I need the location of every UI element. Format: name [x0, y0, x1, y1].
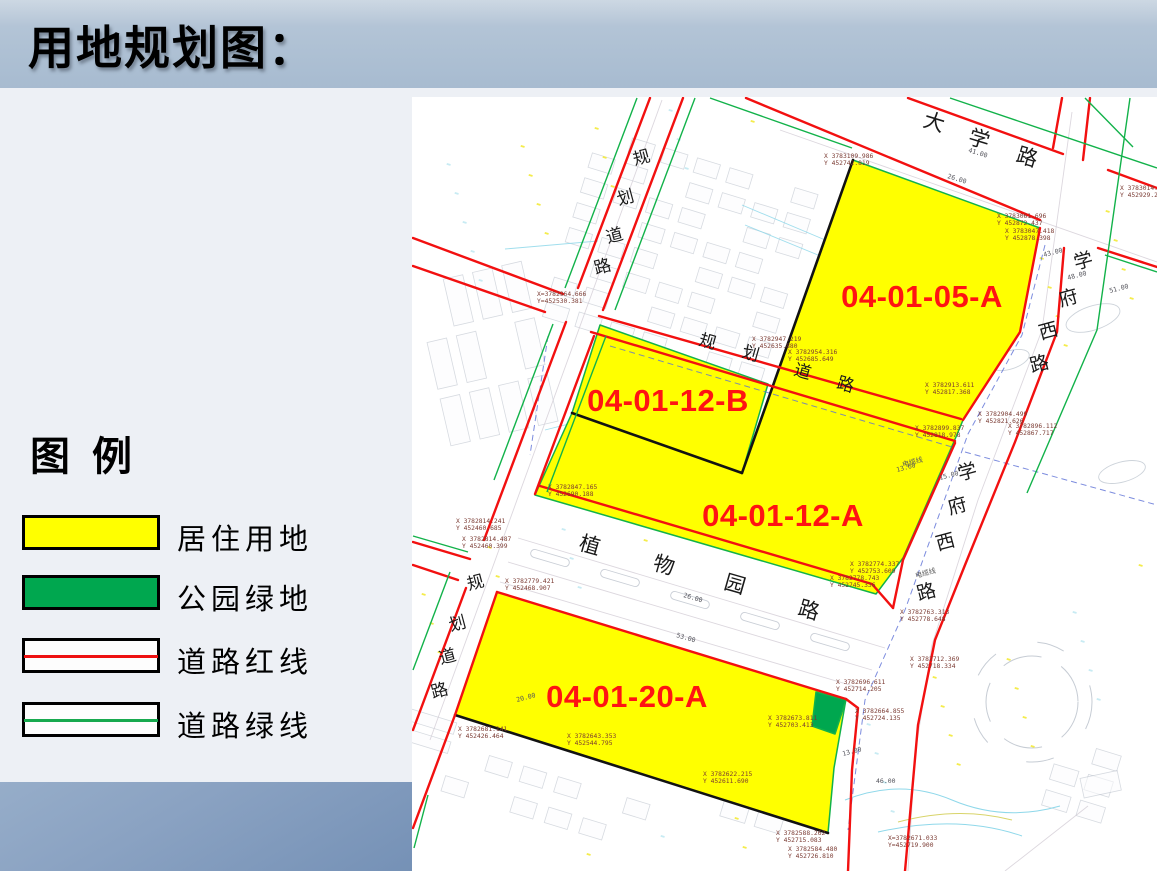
coordinate-label: X=3782671.033Y=452719.900	[888, 835, 937, 849]
building-footprint	[519, 766, 547, 788]
traffic-island	[600, 568, 641, 587]
road-name-char-植物园路: 园	[722, 570, 749, 599]
road-name-char-学府西路-下: 西	[934, 530, 958, 555]
survey-dash	[446, 163, 450, 166]
building-footprint	[655, 282, 682, 303]
survey-dash	[1072, 611, 1076, 614]
coordinate-label: X 3783061.696Y 452872.437	[997, 213, 1046, 227]
building-footprint	[751, 203, 778, 224]
legend-swatch-residential	[22, 515, 160, 550]
building-footprint	[791, 188, 818, 209]
building-footprint	[645, 198, 672, 219]
survey-dash	[536, 203, 540, 206]
survey-dash	[948, 734, 952, 737]
survey-dash	[1063, 344, 1067, 347]
coordinate-label: X 3782779.421Y 452468.907	[505, 578, 554, 592]
parcel-label-04-01-12-B: 04-01-12-B	[587, 383, 749, 418]
building-footprint	[427, 338, 457, 389]
legend-swatch-line	[24, 719, 158, 722]
survey-dash	[1022, 716, 1026, 719]
road-red-line	[413, 565, 458, 580]
road-name-char-学府西路-下: 学	[955, 459, 979, 485]
building-footprint	[1080, 771, 1121, 798]
building-cluster	[1080, 771, 1121, 798]
road-name-char-植物园路: 路	[796, 596, 823, 625]
road-red-line	[1053, 98, 1062, 148]
building-footprint	[1049, 764, 1079, 787]
building-footprint	[735, 252, 762, 273]
building-footprint	[760, 287, 787, 308]
coordinate-label: X 3782712.369Y 452718.334	[910, 656, 959, 670]
road-name-char-植物园路: 物	[651, 551, 678, 580]
annotation-label: 电缆线	[914, 566, 937, 580]
coordinate-label: X 3782899.837Y 452818.978	[915, 425, 964, 439]
building-footprint	[753, 312, 780, 333]
survey-dash	[890, 810, 894, 813]
road-name-char-规划道路-左下: 规	[465, 571, 486, 594]
coordinate-label: X 3782696.611Y 452714.205	[836, 679, 885, 693]
survey-dash	[577, 586, 581, 589]
coordinate-label: X 3783109.986Y 452742.819	[824, 153, 873, 167]
survey-dash	[462, 221, 466, 224]
survey-dash	[932, 676, 936, 679]
coordinate-label: X 3783047.418Y 452878.398	[1005, 228, 1054, 242]
building-footprint	[775, 237, 802, 258]
road-green-line	[1085, 98, 1133, 147]
survey-dash	[1030, 745, 1034, 748]
legend-item-label: 居住用地	[177, 516, 313, 558]
survey-dash	[742, 846, 746, 849]
road-name-char-植物园路: 植	[577, 531, 604, 560]
building-footprint	[456, 331, 486, 382]
survey-dash	[1113, 239, 1117, 242]
building-footprint	[469, 388, 499, 439]
road-centerline	[1005, 806, 1088, 871]
road-name-char-学府西路-下: 府	[945, 493, 969, 519]
survey-dash	[956, 763, 960, 766]
coordinate-label: X 3783014.666Y 452929.283	[1120, 185, 1157, 199]
survey-dash	[866, 723, 870, 726]
road-name-char-学府西路-下: 路	[914, 579, 938, 605]
survey-dash	[1105, 210, 1109, 213]
survey-dash	[561, 528, 565, 531]
building-cluster	[414, 261, 558, 446]
survey-dash	[594, 127, 598, 130]
building-footprint	[515, 318, 545, 369]
coordinate-label: X 3782778.743Y 452745.336	[830, 575, 879, 589]
coordinate-label: X 3782584.480Y 452726.810	[788, 846, 837, 860]
coordinate-label: X 3782673.811Y 452703.413	[768, 715, 817, 729]
building-footprint	[440, 395, 470, 446]
legend-swatch-park-green	[22, 575, 160, 610]
building-footprint	[670, 232, 697, 253]
survey-dash	[1121, 268, 1125, 271]
survey-dash	[569, 557, 573, 560]
building-footprint	[638, 222, 665, 243]
survey-dash	[684, 167, 688, 170]
coordinate-label: X 3782643.353Y 452544.795	[567, 733, 616, 747]
survey-dash	[1006, 658, 1010, 661]
road-name-char-规划道路-左下: 道	[437, 645, 458, 668]
stream-cyan-path	[845, 789, 1060, 813]
survey-dash	[660, 835, 664, 838]
building-footprint	[1092, 749, 1122, 772]
legend-swatch-line	[24, 655, 158, 658]
building-footprint	[542, 302, 569, 323]
survey-dash	[586, 853, 590, 856]
bottom-accent-band	[0, 782, 413, 871]
building-footprint	[510, 797, 538, 819]
road-name-char-大学路: 大	[920, 108, 947, 137]
building-footprint	[743, 227, 770, 248]
road-name-char-规划道路-左下: 划	[447, 612, 468, 635]
building-footprint	[622, 798, 650, 820]
survey-dash	[528, 174, 532, 177]
road-name-char-大学路: 路	[1013, 143, 1040, 172]
survey-dash	[668, 109, 672, 112]
survey-dash	[940, 705, 944, 708]
coordinate-label: X 3782896.112Y 452867.717	[1008, 423, 1057, 437]
building-footprint	[544, 807, 572, 829]
legend-title: 图 例	[30, 424, 138, 482]
distance-label: 53.00	[675, 631, 696, 644]
survey-dash	[520, 145, 524, 148]
coordinate-label: X 3782681.141Y 452426.464	[458, 726, 507, 740]
survey-dash	[750, 120, 754, 123]
survey-dash	[1088, 669, 1092, 672]
survey-dash	[1014, 687, 1018, 690]
building-footprint	[688, 292, 715, 313]
slide: 用地规划图： 图 例 居住用地公园绿地道路红线道路绿线 大学路学府西路学府西路规…	[0, 0, 1157, 871]
distance-label: 51.00	[1108, 282, 1129, 295]
road-green-line	[710, 98, 852, 148]
legend-item-label: 道路绿线	[177, 703, 313, 745]
survey-dash	[454, 192, 458, 195]
survey-dash	[495, 575, 499, 578]
survey-dash	[874, 752, 878, 755]
park-arc	[986, 656, 1078, 748]
building-footprint	[554, 777, 582, 799]
building-footprint	[703, 242, 730, 263]
building-footprint	[728, 277, 755, 298]
building-footprint	[718, 193, 745, 214]
survey-dash	[610, 185, 614, 188]
survey-dash	[1129, 297, 1133, 300]
road-red-line	[1083, 98, 1090, 160]
road-name-char-规划道路-左下: 路	[429, 679, 450, 702]
survey-dash	[1096, 698, 1100, 701]
building-footprint	[499, 381, 529, 432]
building-footprint	[693, 158, 720, 179]
building-footprint	[695, 267, 722, 288]
park-blob	[1096, 456, 1148, 488]
coordinate-label: X 3782588.262Y 452715.083	[776, 830, 825, 844]
page-title: 用地规划图：	[28, 12, 316, 78]
survey-dash	[470, 250, 474, 253]
building-footprint	[580, 178, 607, 199]
title-bar: 用地规划图：	[0, 0, 1157, 88]
building-footprint	[565, 227, 592, 248]
building-footprint	[648, 307, 675, 328]
map-panel: 大学路学府西路学府西路规划道路规划道路规划道路植物园路04-01-05-A04-…	[412, 97, 1157, 871]
planning-map-svg: 大学路学府西路学府西路规划道路规划道路规划道路植物园路04-01-05-A04-…	[412, 97, 1157, 871]
coordinate-label: X=3782964.666Y=452530.381	[537, 291, 586, 305]
building-footprint	[485, 756, 513, 778]
parcel-label-04-01-12-A: 04-01-12-A	[702, 498, 864, 533]
road-red-line	[846, 699, 858, 871]
survey-dash	[1138, 564, 1142, 567]
coordinate-label: X 3782814.241Y 452460.685	[456, 518, 505, 532]
parcel-label-04-01-05-A: 04-01-05-A	[841, 279, 1003, 314]
distance-label: 43.00	[1042, 246, 1063, 259]
legend-swatch-road-green-line	[22, 702, 160, 737]
parcel-label-04-01-20-A: 04-01-20-A	[546, 679, 708, 714]
coordinate-label: X 3782763.313Y 452778.648	[900, 609, 949, 623]
coordinate-label: X 3782847.165Y 452690.188	[548, 484, 597, 498]
stream-olive-path	[898, 813, 1012, 822]
building-footprint	[579, 818, 607, 840]
building-footprint	[441, 776, 469, 798]
distance-label: 48.00	[1066, 269, 1087, 282]
coordinate-label: X 3782954.316Y 452685.649	[788, 349, 837, 363]
park-arc	[972, 642, 1092, 762]
building-footprint	[623, 272, 650, 293]
coordinate-label: X 3782622.215Y 452611.690	[703, 771, 752, 785]
distance-label: 46.00	[876, 777, 896, 785]
coordinate-label: X 3782664.855Y 452724.135	[855, 708, 904, 722]
building-footprint	[472, 268, 502, 319]
building-footprint	[686, 183, 713, 204]
survey-dash	[643, 539, 647, 542]
legend-swatch-road-red-line	[22, 638, 160, 673]
legend-item-label: 道路红线	[177, 639, 313, 681]
distance-label: 13.00	[841, 745, 862, 758]
survey-dash	[544, 232, 548, 235]
traffic-island	[530, 548, 571, 567]
building-footprint	[678, 208, 705, 229]
building-footprint	[783, 213, 810, 234]
legend-item-label: 公园绿地	[177, 576, 313, 618]
coordinate-label: X 3782913.611Y 452817.368	[925, 382, 974, 396]
survey-dash	[421, 593, 425, 596]
coordinate-label: X 3782774.337Y 452753.609	[850, 561, 899, 575]
coordinate-label: X 3782814.487Y 452460.399	[462, 536, 511, 550]
survey-dash	[1080, 640, 1084, 643]
building-footprint	[588, 153, 615, 174]
building-footprint	[726, 168, 753, 189]
